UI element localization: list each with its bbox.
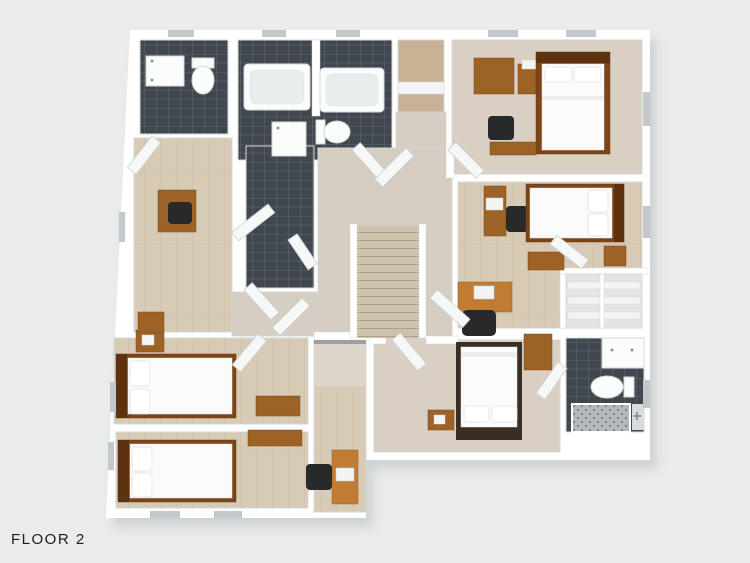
nightstand-item	[522, 60, 536, 69]
toilet-se-bowl	[591, 376, 623, 398]
window-slot	[119, 212, 125, 242]
stair-railing-left	[350, 224, 357, 338]
pillow	[132, 447, 152, 471]
bed-headboard	[118, 440, 129, 502]
window-slot	[336, 30, 360, 37]
nightstand	[138, 312, 164, 332]
pillow	[492, 406, 517, 422]
dresser	[248, 430, 302, 446]
tub-divider-wall	[312, 40, 320, 116]
bed-headboard	[536, 52, 610, 63]
dresser	[474, 58, 514, 94]
hall-south-wall-right	[426, 336, 458, 344]
faucet-dot	[631, 349, 634, 352]
desk-chair	[506, 206, 528, 232]
window-slot	[214, 511, 242, 518]
pillow	[588, 214, 608, 236]
hall-north-floor	[396, 112, 446, 150]
dresser	[528, 252, 564, 270]
bed-headboard	[614, 184, 624, 242]
study-room-floor	[134, 138, 232, 332]
window-slot	[262, 30, 286, 37]
pillow	[574, 67, 601, 82]
closet-ms-track	[314, 340, 366, 344]
window-slot	[643, 206, 650, 238]
closet-north-shelf	[398, 82, 444, 94]
closet-north-floor	[398, 40, 444, 112]
blanket-fold	[461, 352, 517, 357]
faucet-dot	[151, 79, 154, 82]
toilet-center-bowl	[324, 121, 350, 143]
faucet-dot	[277, 127, 280, 130]
window-slot	[108, 442, 114, 470]
bed-headboard	[456, 428, 522, 440]
faucet-dot	[151, 60, 154, 63]
pillow	[545, 67, 572, 82]
bathroom-nw-floor	[140, 40, 228, 134]
closet-east	[566, 274, 642, 328]
closet-ms-floor	[314, 340, 366, 386]
window-slot	[643, 380, 650, 408]
pillow	[132, 473, 152, 497]
desk-chair	[306, 464, 332, 490]
floor-plan-svg	[0, 0, 750, 563]
window-slot	[643, 92, 650, 126]
bathtub-b-basin	[326, 74, 378, 106]
nightstand-front	[142, 335, 154, 345]
nightstand-front	[434, 415, 445, 424]
desk-chair	[488, 116, 514, 140]
window-slot	[566, 30, 596, 37]
bed-headboard	[116, 354, 127, 418]
staircase	[350, 224, 426, 338]
blanket-fold	[542, 96, 604, 100]
shower-pan	[572, 404, 630, 432]
closet-ms	[314, 340, 366, 386]
stair-railing-right	[419, 224, 426, 338]
nightstand	[604, 246, 626, 266]
desk-chair	[168, 202, 192, 224]
closet-e-wall-north	[560, 268, 648, 274]
closet-divider	[600, 274, 604, 328]
window-slot	[168, 30, 194, 37]
laptop	[336, 468, 354, 481]
floor-plan-render	[0, 0, 750, 563]
dresser	[524, 334, 552, 370]
laptop	[486, 198, 503, 210]
dresser	[256, 396, 300, 416]
window-slot	[488, 30, 518, 37]
vanity-se	[602, 338, 644, 368]
bathtub-a-basin	[250, 70, 304, 104]
desk	[490, 142, 536, 155]
window-slot	[150, 511, 180, 518]
shower-corner	[632, 404, 644, 430]
window-slot	[110, 382, 116, 412]
pillow	[130, 389, 150, 414]
closet-e-wall-west	[560, 268, 566, 328]
laptop	[474, 286, 494, 299]
desk	[484, 186, 506, 236]
floor-label: FLOOR 2	[11, 531, 86, 548]
toilet-se-tank	[624, 377, 634, 397]
toilet-nw-bowl	[192, 66, 214, 94]
pillow	[464, 406, 489, 422]
stair-steps	[357, 226, 419, 338]
faucet-dot	[611, 349, 614, 352]
pillow	[588, 190, 608, 212]
pillow	[130, 361, 150, 386]
